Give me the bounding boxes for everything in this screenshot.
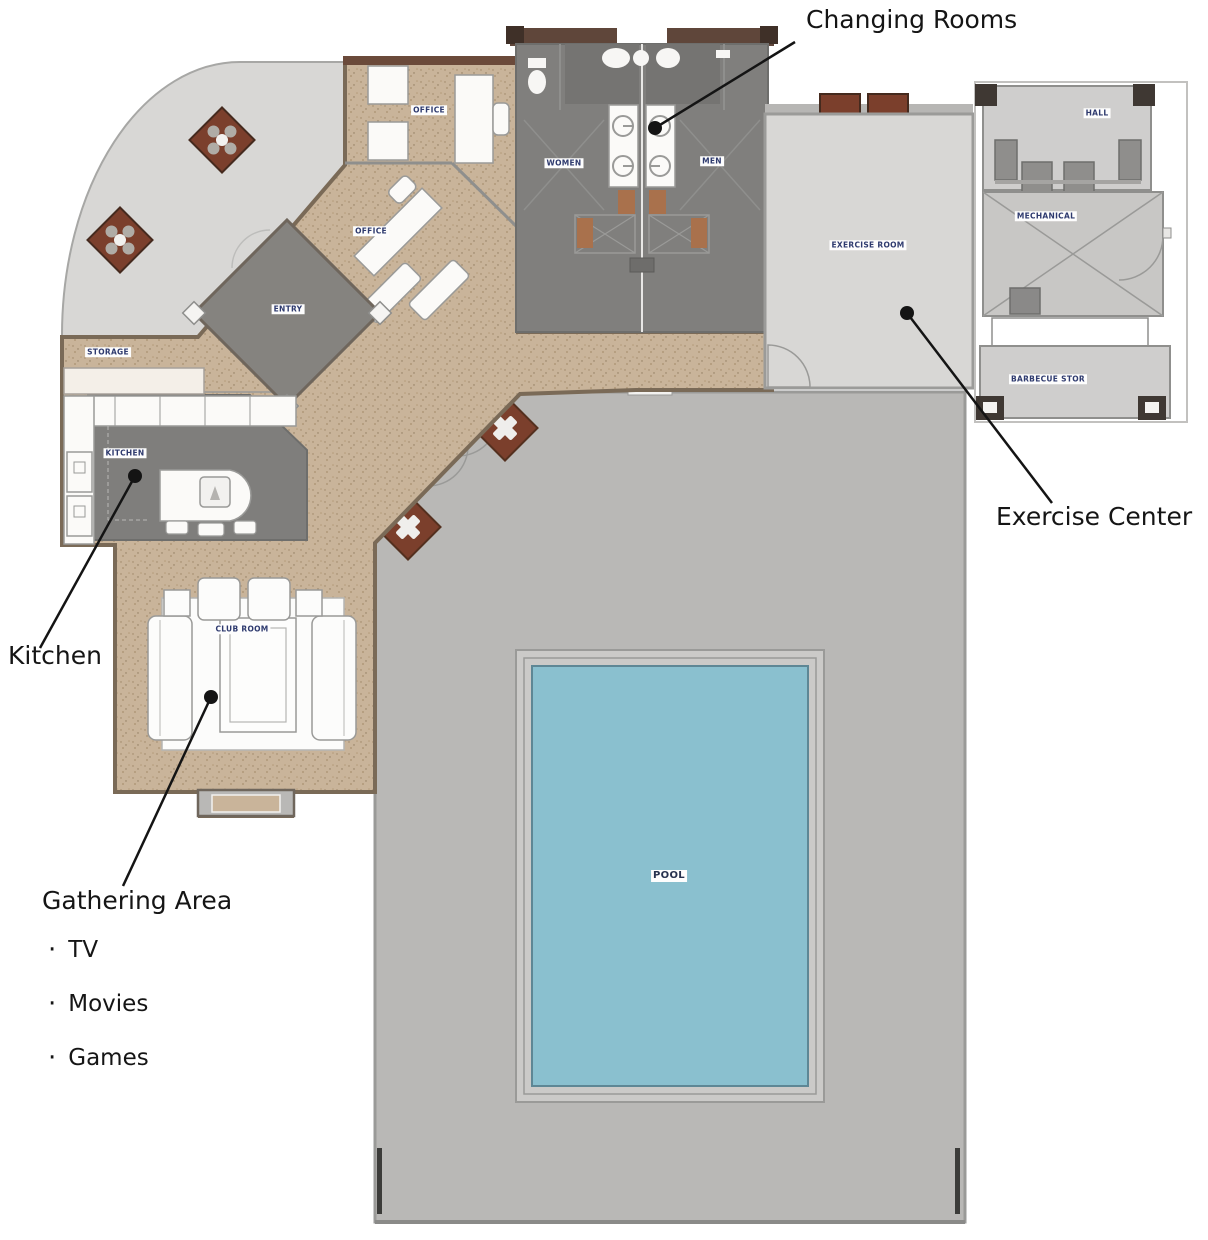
kitchen-island-icon xyxy=(160,470,256,536)
room-label-exercise-room: EXERCISE ROOM xyxy=(829,240,906,250)
room-label-barbecue-storage: BARBECUE STOR xyxy=(1009,374,1087,384)
bullet-icon: · xyxy=(48,1043,56,1073)
gathering-item-movies: · Movies xyxy=(42,989,232,1019)
armchair-icon xyxy=(248,578,290,620)
callout-changing-rooms: Changing Rooms xyxy=(806,6,1017,34)
gathering-item-tv: · TV xyxy=(42,935,232,965)
toilet-icon xyxy=(656,48,680,68)
gathering-item-label: TV xyxy=(68,937,98,963)
fence-post-icon xyxy=(377,1148,382,1214)
gathering-item-label: Games xyxy=(68,1045,148,1071)
side-table-icon xyxy=(164,590,190,616)
room-label-kitchen: KITCHEN xyxy=(104,448,147,458)
appliance-icon xyxy=(67,452,92,492)
right-wing xyxy=(975,82,1187,422)
sink-icon xyxy=(602,48,630,68)
fence-post-icon xyxy=(955,1148,960,1214)
callout-kitchen: Kitchen xyxy=(8,642,102,670)
room-label-hall: HALL xyxy=(1084,108,1111,118)
room-label-storage: STORAGE xyxy=(85,347,131,357)
room-label-office-lower: OFFICE xyxy=(353,226,389,236)
bullet-icon: · xyxy=(48,989,56,1019)
sofa-icon xyxy=(312,616,356,740)
floor-plan-page: OFFICE OFFICE ENTRY STORAGE KITCHEN CLUB… xyxy=(0,0,1208,1240)
side-table-icon xyxy=(296,590,322,616)
desk-icon xyxy=(455,75,493,163)
gathering-area-title: Gathering Area xyxy=(42,886,232,915)
vanity-icon xyxy=(609,105,638,187)
toilet-icon xyxy=(528,58,546,94)
room-label-club-room: CLUB ROOM xyxy=(213,624,270,634)
callout-exercise-center: Exercise Center xyxy=(996,503,1192,531)
gathering-item-label: Movies xyxy=(68,991,148,1017)
coffee-table-icon xyxy=(220,618,296,732)
appliance-icon xyxy=(67,496,92,536)
sink-icon xyxy=(633,50,649,66)
callout-gathering-area: Gathering Area · TV · Movies · Games xyxy=(42,886,232,1097)
changing-rooms-block xyxy=(506,26,778,332)
counter-icon xyxy=(64,368,204,394)
armchair-icon xyxy=(198,578,240,620)
desk-chair-icon xyxy=(493,103,509,135)
office-chair-icon xyxy=(368,122,408,160)
room-label-pool: POOL xyxy=(651,870,687,882)
room-label-office-upper: OFFICE xyxy=(411,105,447,115)
room-label-women: WOMEN xyxy=(544,158,583,168)
bullet-icon: · xyxy=(48,935,56,965)
counter-icon xyxy=(70,396,296,426)
office-chair-icon xyxy=(368,66,408,104)
room-label-mechanical: MECHANICAL xyxy=(1015,211,1077,221)
sofa-icon xyxy=(148,616,192,740)
room-label-entry: ENTRY xyxy=(272,304,305,314)
gathering-item-games: · Games xyxy=(42,1043,232,1073)
hall-room xyxy=(975,84,1155,192)
room-label-men: MEN xyxy=(700,156,724,166)
